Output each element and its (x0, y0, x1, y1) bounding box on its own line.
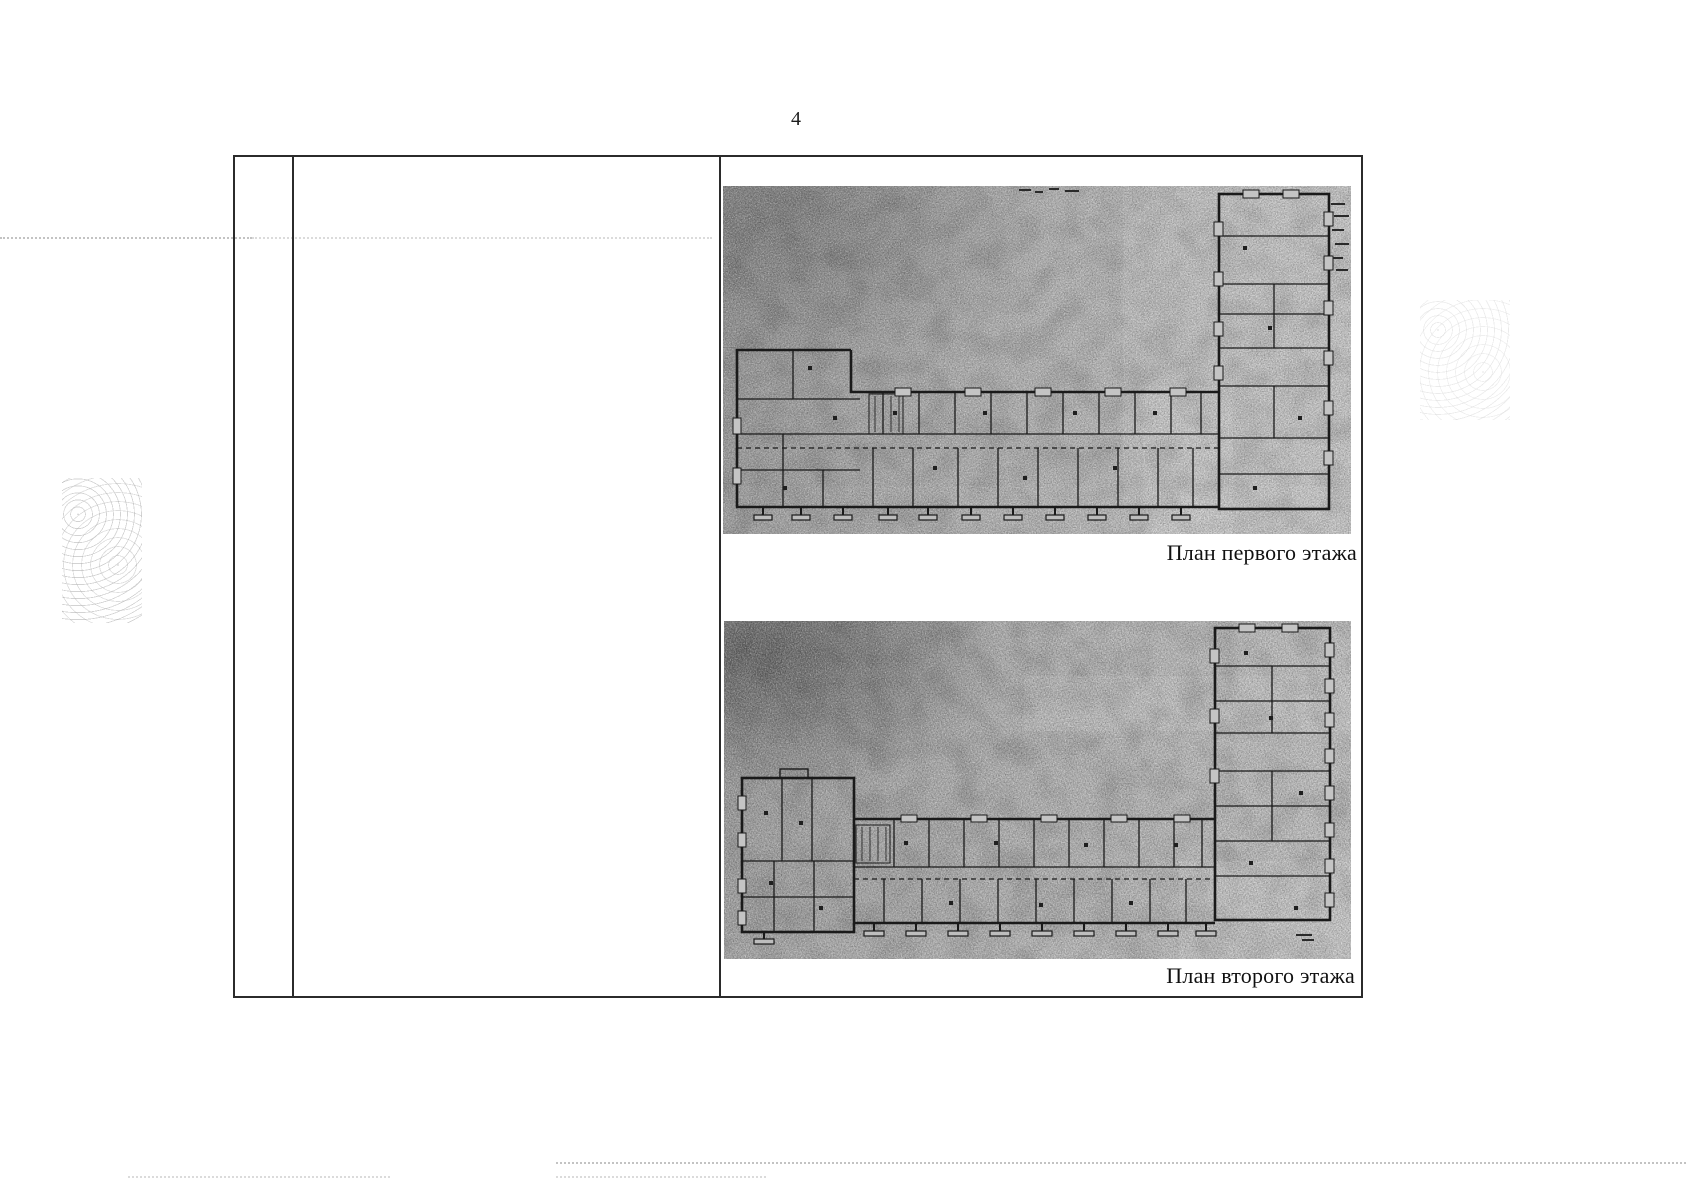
table-cell-left (235, 157, 292, 996)
scan-artifact-line-bottom-3 (556, 1176, 766, 1178)
table-cell-middle (294, 157, 719, 996)
scan-artifact-dots-left (62, 478, 142, 623)
scan-artifact-line-top (0, 237, 252, 239)
scan-artifact-line-bottom-2 (128, 1176, 390, 1178)
second-floor-plan-caption: План второго этажа (1166, 963, 1355, 989)
first-floor-plan-caption: План первого этажа (1167, 540, 1357, 566)
scan-artifact-line-bottom-1 (556, 1162, 1686, 1164)
scan-artifact-dots-right (1420, 300, 1510, 420)
page-number: 4 (772, 108, 820, 131)
second-floor-plan-figure (724, 621, 1351, 959)
first-floor-plan-image (723, 186, 1351, 534)
second-floor-plan-image (724, 621, 1351, 959)
first-floor-plan-figure (723, 186, 1351, 534)
